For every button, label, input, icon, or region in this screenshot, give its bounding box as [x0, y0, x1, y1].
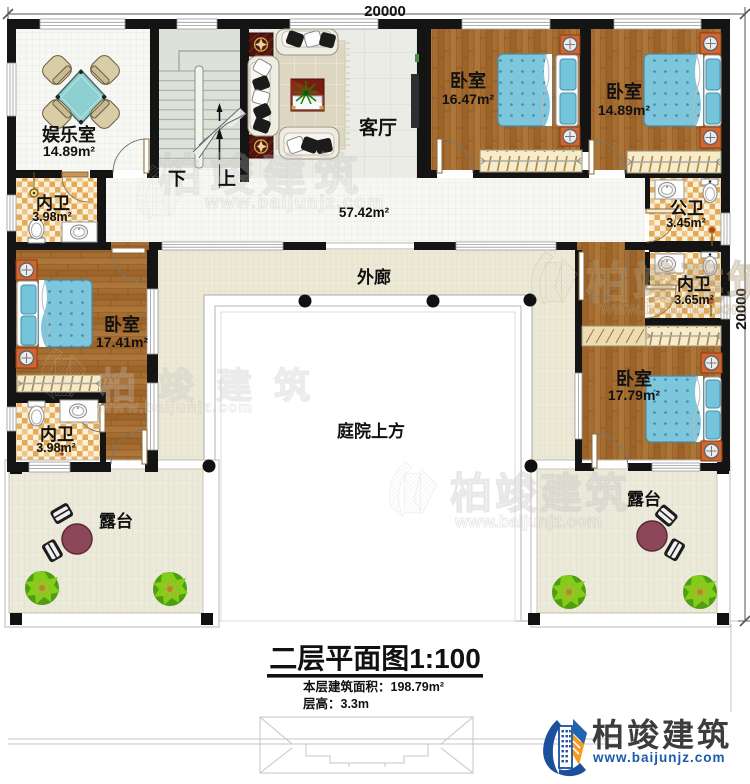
svg-text:16.47m²: 16.47m² [442, 91, 494, 107]
svg-text:露台: 露台 [99, 511, 133, 531]
svg-text:www.baijunjz.com: www.baijunjz.com [599, 299, 747, 318]
svg-text:层高：3.3m: 层高：3.3m [303, 696, 369, 711]
svg-text:www.baijunjz.com: www.baijunjz.com [592, 750, 726, 765]
svg-text:57.42m²: 57.42m² [339, 205, 390, 220]
svg-text:庭院上方: 庭院上方 [337, 421, 405, 441]
svg-text:本层建筑面积：198.79m²: 本层建筑面积：198.79m² [303, 679, 444, 694]
svg-text:柏竣建筑: 柏竣建筑 [450, 470, 630, 517]
svg-text:外廊: 外廊 [357, 267, 391, 287]
svg-text:3.45m²: 3.45m² [666, 216, 706, 230]
svg-text:14.89m²: 14.89m² [43, 143, 95, 159]
svg-text:17.41m²: 17.41m² [96, 334, 148, 350]
svg-text:客厅: 客厅 [359, 116, 397, 139]
svg-text:www.baijunjz.com: www.baijunjz.com [454, 512, 602, 531]
svg-text:14.89m²: 14.89m² [598, 102, 650, 118]
svg-text:下: 下 [168, 169, 186, 189]
svg-text:卧室: 卧室 [104, 314, 140, 335]
svg-text:卧室: 卧室 [606, 81, 642, 102]
svg-text:柏竣建筑: 柏竣建筑 [592, 717, 732, 753]
svg-text:20000: 20000 [364, 3, 406, 20]
svg-text:www.baijunjz.com: www.baijunjz.com [99, 399, 253, 416]
svg-text:3.98m²: 3.98m² [32, 210, 72, 224]
svg-text:3.65m²: 3.65m² [674, 293, 714, 307]
svg-text:17.79m²: 17.79m² [608, 387, 660, 403]
svg-text:二层平面图1:100: 二层平面图1:100 [269, 643, 481, 674]
svg-text:卧室: 卧室 [450, 70, 486, 91]
svg-text:娱乐室: 娱乐室 [42, 124, 96, 145]
svg-text:3.98m²: 3.98m² [36, 441, 76, 455]
svg-text:露台: 露台 [627, 489, 661, 509]
svg-text:内卫: 内卫 [677, 274, 711, 294]
svg-text:上: 上 [218, 169, 236, 189]
svg-text:卧室: 卧室 [616, 368, 652, 389]
